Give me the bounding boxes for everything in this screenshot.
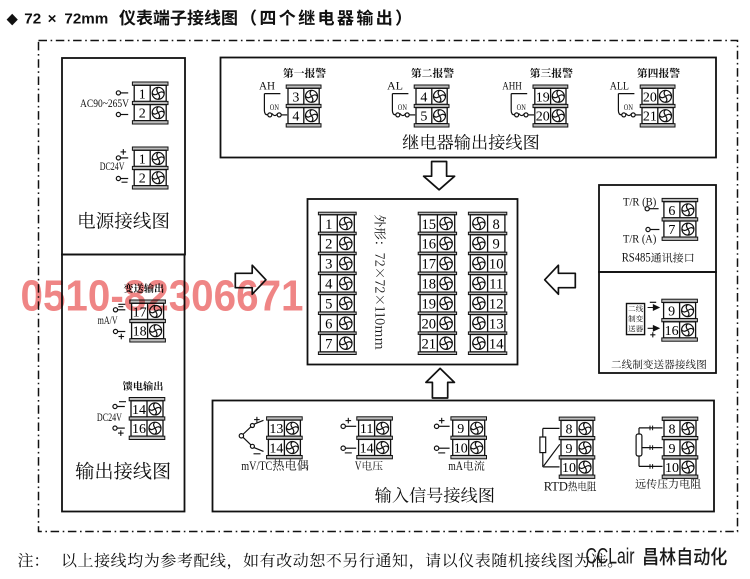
svg-text:mA: mA — [448, 459, 463, 473]
svg-text:×: × — [48, 10, 57, 27]
svg-text:9: 9 — [457, 422, 464, 437]
svg-text:20: 20 — [536, 110, 550, 125]
svg-text:14: 14 — [360, 442, 374, 457]
svg-text:2: 2 — [139, 172, 146, 187]
svg-text:14: 14 — [132, 403, 146, 418]
svg-text:ALL: ALL — [610, 80, 629, 92]
svg-text:DC24V: DC24V — [97, 412, 123, 424]
svg-text:ON: ON — [398, 102, 408, 112]
svg-text:0510-82306671: 0510-82306671 — [21, 273, 304, 321]
svg-text:10: 10 — [665, 461, 679, 476]
svg-text:13: 13 — [269, 422, 283, 437]
svg-text:2: 2 — [325, 237, 332, 253]
svg-text:RS485: RS485 — [622, 251, 651, 265]
svg-text:5: 5 — [420, 110, 427, 125]
svg-text:15: 15 — [422, 217, 437, 233]
svg-text:16: 16 — [132, 422, 146, 437]
svg-text:T/R (A): T/R (A) — [623, 233, 657, 245]
svg-text:16: 16 — [422, 237, 437, 253]
svg-text:7: 7 — [668, 223, 675, 238]
svg-text:9: 9 — [668, 305, 675, 320]
svg-text:DC24V: DC24V — [100, 161, 125, 173]
svg-text:3: 3 — [325, 257, 332, 273]
svg-text:8: 8 — [566, 423, 573, 438]
svg-text:17: 17 — [422, 257, 437, 273]
svg-text:8: 8 — [493, 217, 500, 233]
svg-text:9: 9 — [493, 237, 500, 253]
svg-text:11: 11 — [489, 277, 503, 293]
svg-text:19: 19 — [536, 90, 550, 105]
svg-text:21: 21 — [422, 337, 437, 353]
svg-text:12: 12 — [489, 297, 504, 313]
svg-text:ON: ON — [270, 102, 280, 112]
svg-text:6: 6 — [325, 317, 332, 333]
svg-text:3: 3 — [292, 90, 299, 105]
svg-text:RTD: RTD — [544, 480, 568, 494]
svg-text:ON: ON — [517, 102, 527, 112]
svg-text:20: 20 — [643, 90, 657, 105]
svg-text:mV/TC: mV/TC — [241, 459, 272, 473]
svg-text:1: 1 — [325, 217, 332, 233]
svg-text:T/R (B): T/R (B) — [623, 197, 657, 209]
svg-text:14: 14 — [269, 442, 283, 457]
svg-text:4: 4 — [420, 90, 427, 105]
svg-text:18: 18 — [422, 277, 437, 293]
svg-text:13: 13 — [489, 317, 504, 333]
svg-text:ON: ON — [624, 102, 634, 112]
svg-text:19: 19 — [422, 297, 437, 313]
svg-text:AHH: AHH — [502, 80, 522, 92]
svg-text:21: 21 — [643, 110, 657, 125]
svg-text:4: 4 — [292, 110, 299, 125]
svg-text:5: 5 — [325, 297, 332, 313]
svg-text:AC90~265V: AC90~265V — [80, 98, 130, 110]
svg-text:CCLair: CCLair — [586, 544, 635, 569]
svg-text:8: 8 — [669, 423, 676, 438]
svg-text:10: 10 — [562, 461, 576, 476]
svg-text:2: 2 — [139, 107, 146, 122]
svg-text:11: 11 — [360, 422, 373, 437]
svg-text:20: 20 — [422, 317, 437, 333]
svg-text:7: 7 — [325, 337, 332, 353]
svg-text:10: 10 — [489, 257, 504, 273]
svg-text:1: 1 — [139, 152, 146, 167]
svg-text:AL: AL — [387, 80, 403, 92]
svg-text:14: 14 — [489, 337, 504, 353]
svg-text:72: 72 — [24, 10, 41, 27]
svg-text:9: 9 — [566, 442, 573, 457]
svg-text:AH: AH — [259, 80, 275, 92]
svg-text:4: 4 — [325, 277, 333, 293]
svg-text:9: 9 — [669, 442, 676, 457]
svg-text:V: V — [355, 459, 362, 473]
svg-text:10: 10 — [454, 442, 468, 457]
svg-text:16: 16 — [665, 324, 679, 339]
svg-text:1: 1 — [139, 87, 146, 102]
svg-text:18: 18 — [133, 325, 147, 340]
svg-text:6: 6 — [668, 204, 675, 219]
svg-text:72mm: 72mm — [64, 10, 108, 27]
